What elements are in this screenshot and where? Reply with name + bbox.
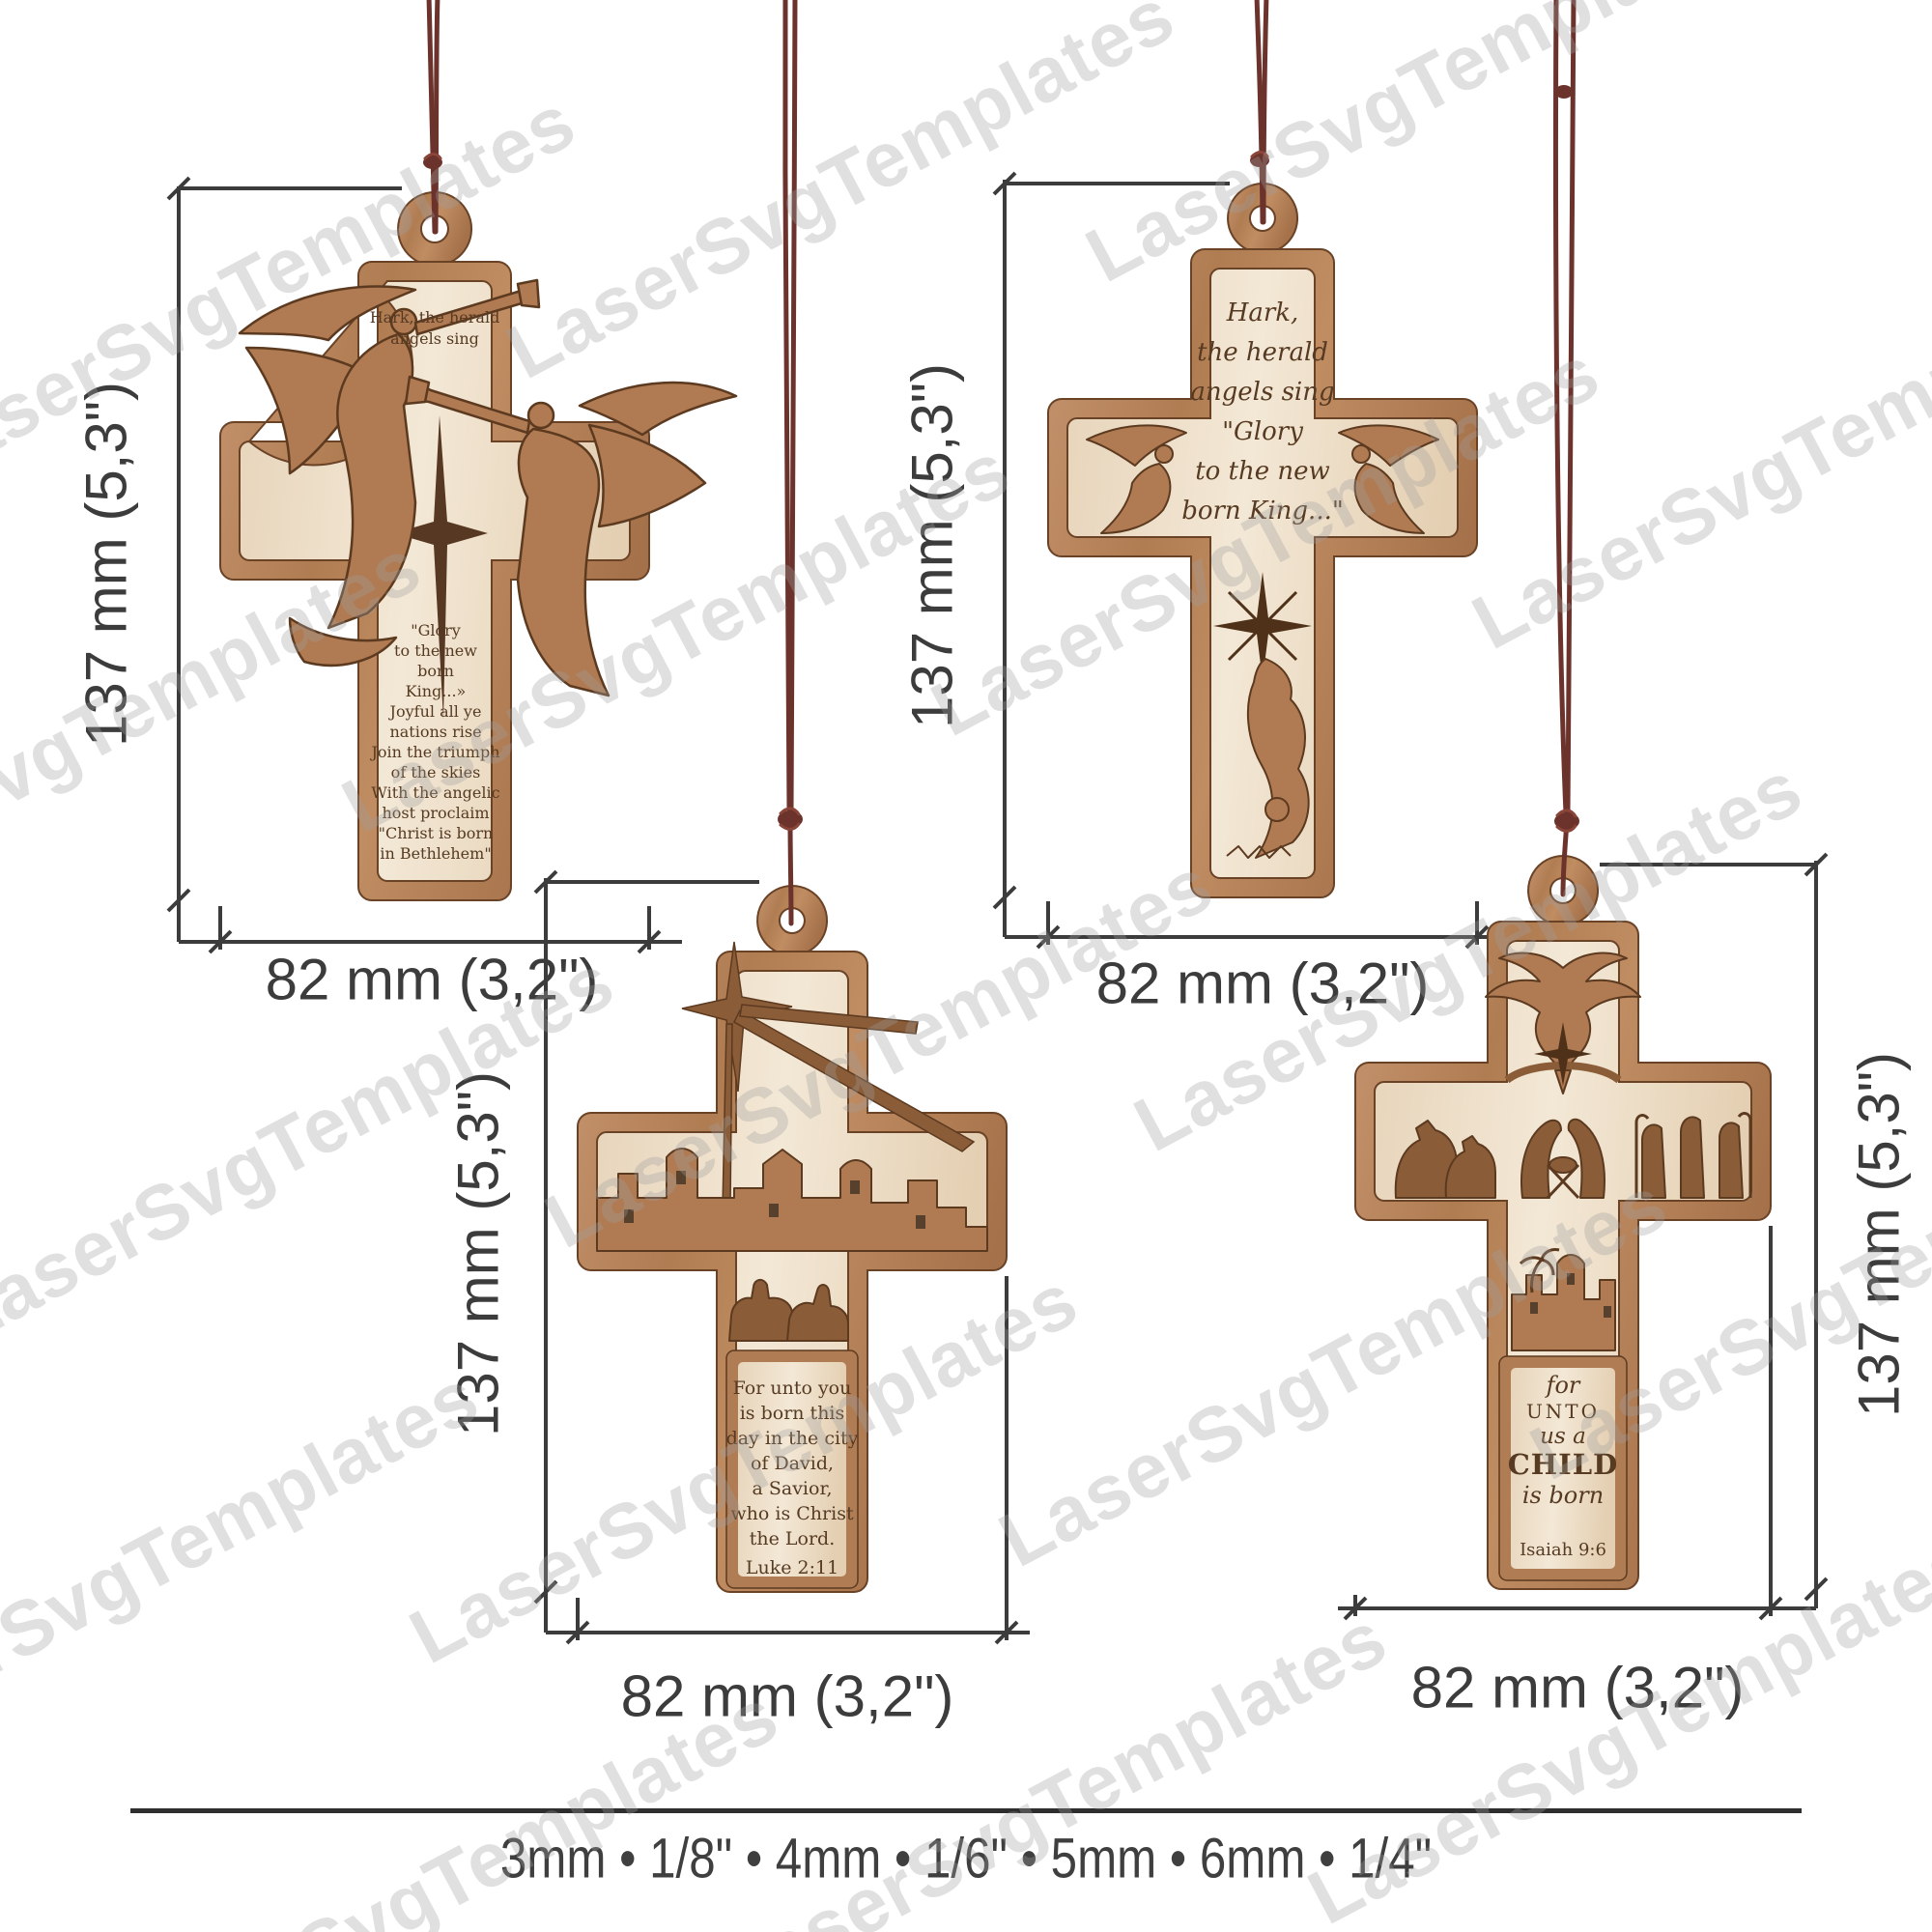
cord-cross4 <box>1554 0 1579 895</box>
cross2-height-label: 137 mm (5,3") <box>899 363 966 728</box>
cross3-height-label: 137 mm (5,3") <box>445 1071 512 1436</box>
cross4-height-label: 137 mm (5,3") <box>1846 1052 1913 1417</box>
cord-cross3 <box>778 0 803 923</box>
cross4-verse-reference: Isaiah 9:6 <box>1520 1540 1606 1560</box>
cross2-verse-text: Hark,the heraldangels sing"Gloryto the n… <box>1181 294 1344 531</box>
glory-cross-ornament <box>1048 184 1477 897</box>
cross2-width-label: 82 mm (3,2") <box>1096 951 1430 1017</box>
cross3-verse-text: For unto youis born thisday in the cityo… <box>726 1376 859 1551</box>
cross3-verse-reference: Luke 2:11 <box>746 1557 838 1578</box>
cross1-verse-text: "Gloryto the newbornKing...»Joyful all y… <box>371 620 499 864</box>
product-mockup-page: Hark, the heraldangels sing "Gloryto the… <box>0 0 1932 1932</box>
cross3-width-label: 82 mm (3,2") <box>621 1663 954 1730</box>
material-thickness-list: 3mm • 1/8" • 4mm • 1/6" • 5mm • 6mm • 1/… <box>500 1827 1432 1891</box>
cross4-verse-text: forUNTOus aCHILDis born <box>1508 1372 1619 1510</box>
cross4-width-label: 82 mm (3,2") <box>1411 1655 1745 1721</box>
footer-divider <box>130 1808 1802 1813</box>
cross1-width-label: 82 mm (3,2") <box>266 947 599 1013</box>
cross1-height-label: 137 mm (5,3") <box>73 382 140 747</box>
cross1-title-text: Hark, the heraldangels sing <box>370 307 500 350</box>
